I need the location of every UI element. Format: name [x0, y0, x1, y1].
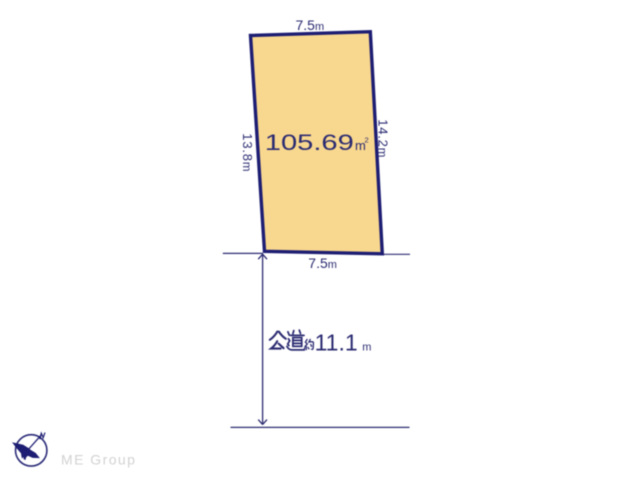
- svg-text:2: 2: [365, 136, 369, 145]
- svg-text:105.69: 105.69: [265, 130, 354, 155]
- svg-text:11.1: 11.1: [315, 329, 358, 355]
- svg-text:14.2m: 14.2m: [375, 119, 390, 158]
- svg-text:13.8m: 13.8m: [240, 133, 255, 172]
- svg-text:ME Group: ME Group: [61, 452, 136, 468]
- svg-text:m: m: [362, 341, 371, 353]
